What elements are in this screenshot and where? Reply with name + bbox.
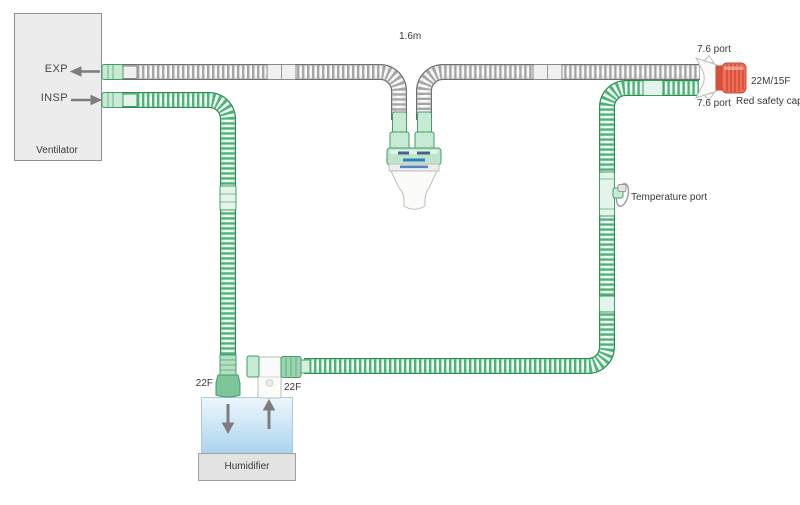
insp-flow-arrow [71,96,101,105]
temperature-port-cap [618,185,626,192]
water-trap [387,112,441,209]
patient-connector-label: 22M/15F [751,76,790,87]
water-trap-marking [398,152,409,155]
exp-flow-arrow [71,67,100,76]
temperature-port-label: Temperature port [631,192,707,203]
humidifier-inlet-size-label: 22F [193,378,213,389]
water-trap-marking [403,159,425,162]
water-trap-marking [417,152,430,155]
water-trap-chamber [391,171,437,209]
humidifier-outlet-flow-arrow [264,400,275,429]
breathing-circuit-diagram: Humidifier [0,0,800,505]
exp-port-connector [102,65,137,80]
insp-label: INSP [14,93,68,104]
tube-length-label: 1.6m [399,31,421,42]
humidifier-outlet-size-label: 22F [284,382,301,393]
red-cap-label: Red safety cap [736,96,800,107]
temperature-port [600,172,631,216]
humidifier-inlet-connector [216,355,240,397]
water-trap-marking [400,166,428,169]
circuit-tubing-layer [0,0,800,505]
ventilator-label: Ventilator [14,145,100,156]
insp-port-connector [102,93,137,108]
humidifier-inlet-flow-arrow [223,404,234,433]
inspiratory-tube [122,100,228,360]
heated-inspiratory-tube [304,88,699,366]
top-port-label: 7.6 port [697,44,731,55]
exp-label: EXP [14,64,68,75]
bottom-port-label: 7.6 port [697,98,731,109]
red-safety-cap [716,63,746,93]
tube-joint [220,65,663,313]
